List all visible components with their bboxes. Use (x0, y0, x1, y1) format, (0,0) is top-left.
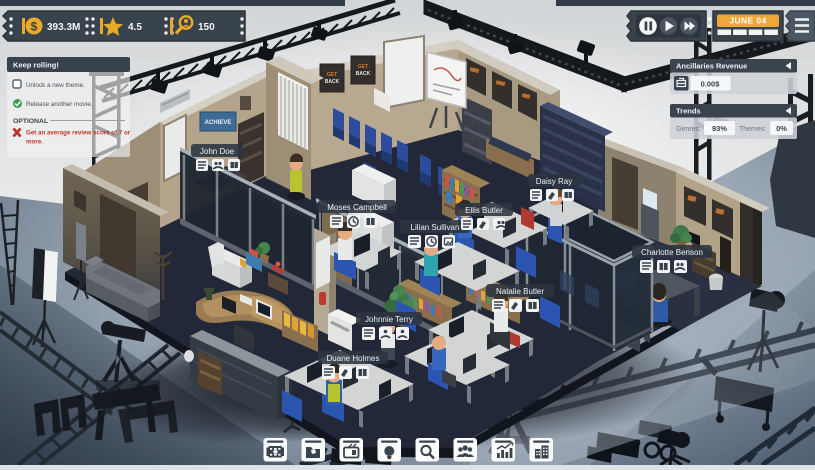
svg-text:93%: 93% (712, 124, 727, 133)
svg-text:Ellis Butler: Ellis Butler (465, 206, 503, 215)
svg-text:Ancillaries Revenue: Ancillaries Revenue (676, 62, 747, 71)
svg-text:BACK: BACK (356, 71, 371, 77)
svg-text:150: 150 (198, 22, 215, 33)
svg-text:4.5: 4.5 (128, 22, 142, 33)
svg-text:Trends: Trends (676, 107, 701, 116)
svg-text:Daisy Ray: Daisy Ray (536, 177, 572, 186)
svg-text:Keep rolling!: Keep rolling! (13, 61, 59, 70)
svg-text:BACK: BACK (325, 79, 340, 85)
svg-text:Themes:: Themes: (739, 126, 766, 133)
svg-text:GET: GET (358, 64, 368, 70)
svg-text:Lilian Sullivan: Lilian Sullivan (411, 223, 460, 232)
svg-text:$: $ (31, 20, 38, 34)
svg-text:OPTIONAL: OPTIONAL (13, 118, 48, 125)
svg-text:Charlotte Benson: Charlotte Benson (641, 248, 703, 257)
svg-text:Release another movie.: Release another movie. (26, 101, 93, 108)
svg-text:0.00$: 0.00$ (701, 80, 721, 89)
svg-text:Get an average review score of: Get an average review score of 7 or (26, 130, 131, 137)
svg-text:393.3M: 393.3M (47, 22, 80, 33)
svg-text:ACHIEVE: ACHIEVE (205, 120, 232, 126)
svg-text:Genres:: Genres: (676, 126, 701, 133)
svg-text:Natalie Butler: Natalie Butler (496, 287, 544, 296)
svg-text:Unlock a new theme.: Unlock a new theme. (26, 82, 85, 89)
svg-text:GET: GET (327, 72, 337, 78)
svg-text:Johnnie Terry: Johnnie Terry (365, 315, 413, 324)
svg-text:Duane Holmes: Duane Holmes (327, 354, 380, 363)
svg-text:more.: more. (26, 139, 43, 146)
svg-text:0%: 0% (776, 124, 787, 133)
svg-text:JUNE 04: JUNE 04 (729, 16, 766, 26)
svg-text:Moses Campbell: Moses Campbell (327, 203, 387, 212)
svg-text:John Doe: John Doe (200, 147, 235, 156)
